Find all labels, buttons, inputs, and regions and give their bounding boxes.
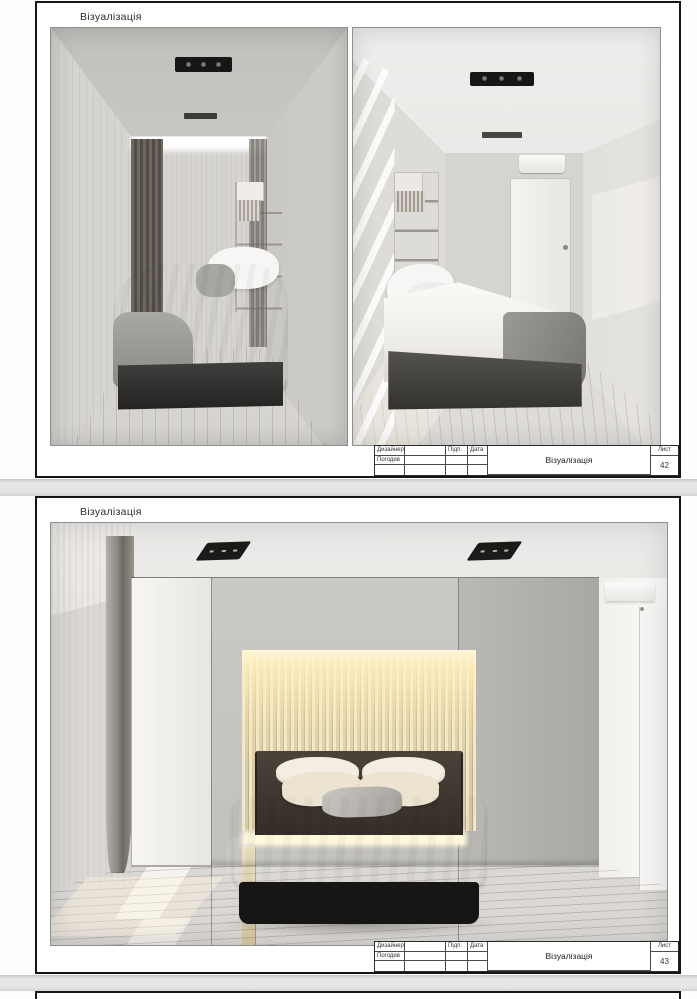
empty-cell — [468, 465, 488, 475]
empty-cell — [446, 456, 468, 466]
title-block: Дизайнер Підп. Дата Візуалізація Лист По… — [374, 445, 679, 476]
designer-label: Дизайнер — [375, 446, 405, 456]
empty-cell — [446, 952, 468, 962]
page-title: Візуалізація — [80, 506, 142, 518]
title-block: Дизайнер Підп. Дата Візуалізація Лист По… — [374, 941, 679, 972]
signature-label: Підп. — [446, 446, 468, 456]
designer-name-cell — [405, 942, 446, 952]
bedroom-render-side-view — [352, 27, 661, 446]
page-gap — [0, 479, 697, 496]
sheet-number: 42 — [651, 456, 678, 475]
designer-name-cell — [405, 446, 446, 456]
page-title: Візуалізація — [80, 11, 142, 23]
vignette — [51, 28, 347, 445]
doc-title: Візуалізація — [488, 942, 651, 971]
date-label: Дата — [468, 446, 488, 456]
designer-label: Дизайнер — [375, 942, 405, 952]
vignette — [51, 523, 667, 945]
approved-label: Погодив — [375, 456, 405, 466]
empty-cell — [405, 456, 446, 466]
empty-cell — [375, 465, 405, 475]
doc-title: Візуалізація — [488, 446, 651, 475]
vignette — [353, 28, 660, 445]
empty-cell — [405, 952, 446, 962]
page-gap — [0, 975, 697, 991]
sheet-page-43: Візуалізація — [35, 496, 681, 974]
bedroom-render-front-view — [50, 27, 348, 446]
empty-cell — [468, 961, 488, 971]
empty-cell — [468, 456, 488, 466]
empty-cell — [446, 465, 468, 475]
document-scan: Візуалізація — [0, 0, 697, 999]
next-page-edge — [35, 991, 681, 999]
empty-cell — [405, 465, 446, 475]
sheet-page-42: Візуалізація — [35, 1, 681, 478]
empty-cell — [405, 961, 446, 971]
sheet-label: Лист — [651, 446, 678, 456]
empty-cell — [375, 961, 405, 971]
empty-cell — [446, 961, 468, 971]
sheet-number: 43 — [651, 952, 678, 971]
sheet-label: Лист — [651, 942, 678, 952]
empty-cell — [468, 952, 488, 962]
date-label: Дата — [468, 942, 488, 952]
signature-label: Підп. — [446, 942, 468, 952]
bedroom-render-main-view — [50, 522, 668, 946]
approved-label: Погодив — [375, 952, 405, 962]
